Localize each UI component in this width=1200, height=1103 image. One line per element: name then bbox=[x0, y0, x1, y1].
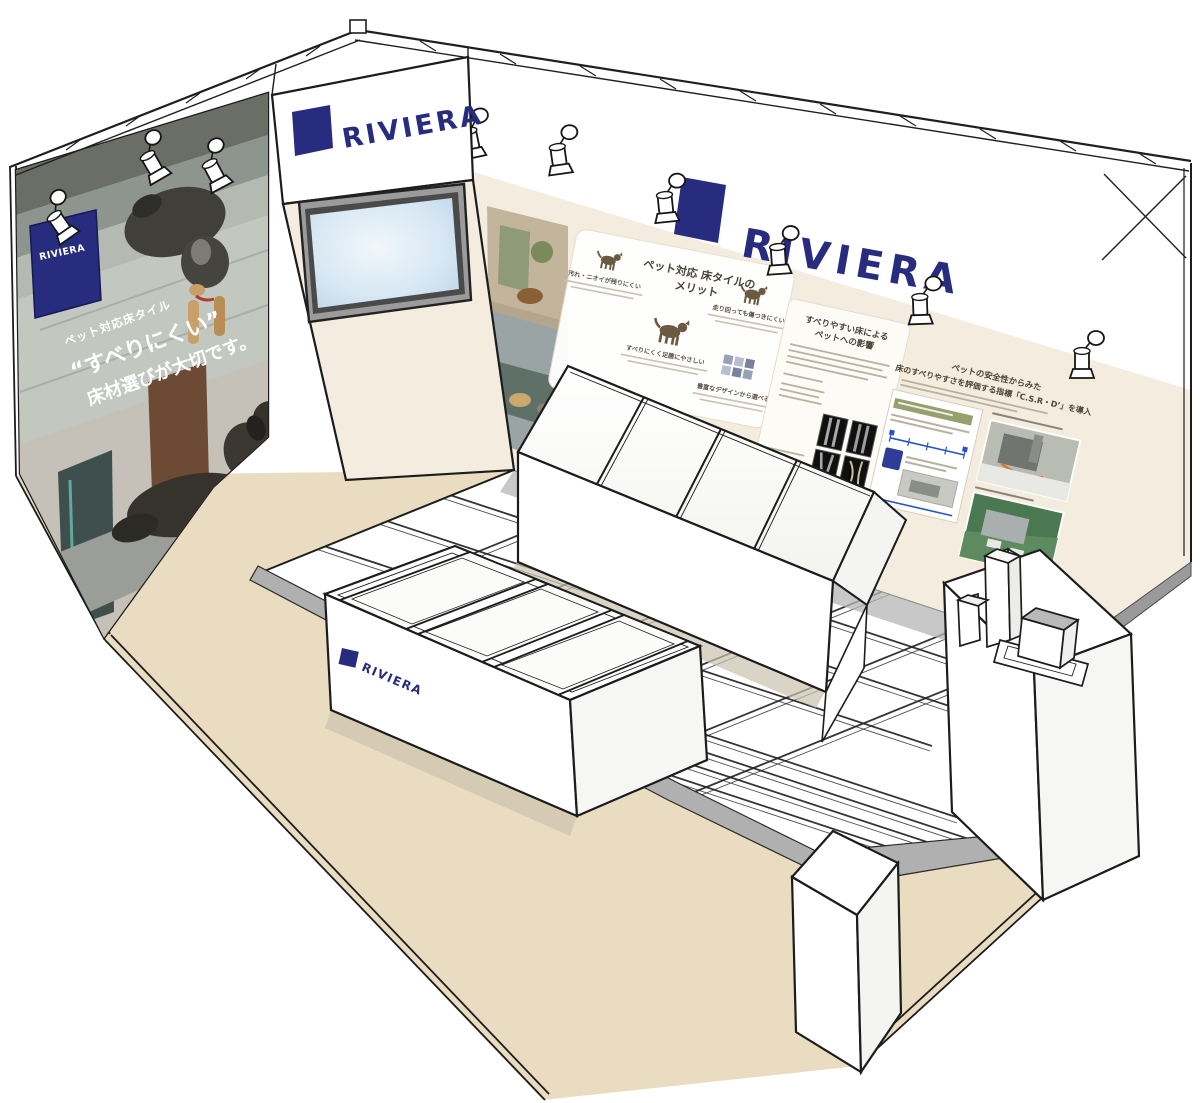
wall-monitor bbox=[299, 184, 471, 322]
hanging-banner: RIVIERA bbox=[272, 47, 486, 204]
booth-scene: ペット対応床タイル “すべりにくい” 床材選びが大切です。 RIVIERA RI… bbox=[0, 0, 1200, 1103]
pedestal bbox=[792, 831, 901, 1072]
monitor-screen bbox=[310, 198, 459, 308]
spotlight-icon bbox=[543, 124, 583, 175]
banner-logo-square bbox=[292, 105, 333, 156]
partition-wall bbox=[283, 180, 514, 480]
booth-rendering: ペット対応床タイル “すべりにくい” 床材選びが大切です。 RIVIERA RI… bbox=[0, 0, 1200, 1103]
